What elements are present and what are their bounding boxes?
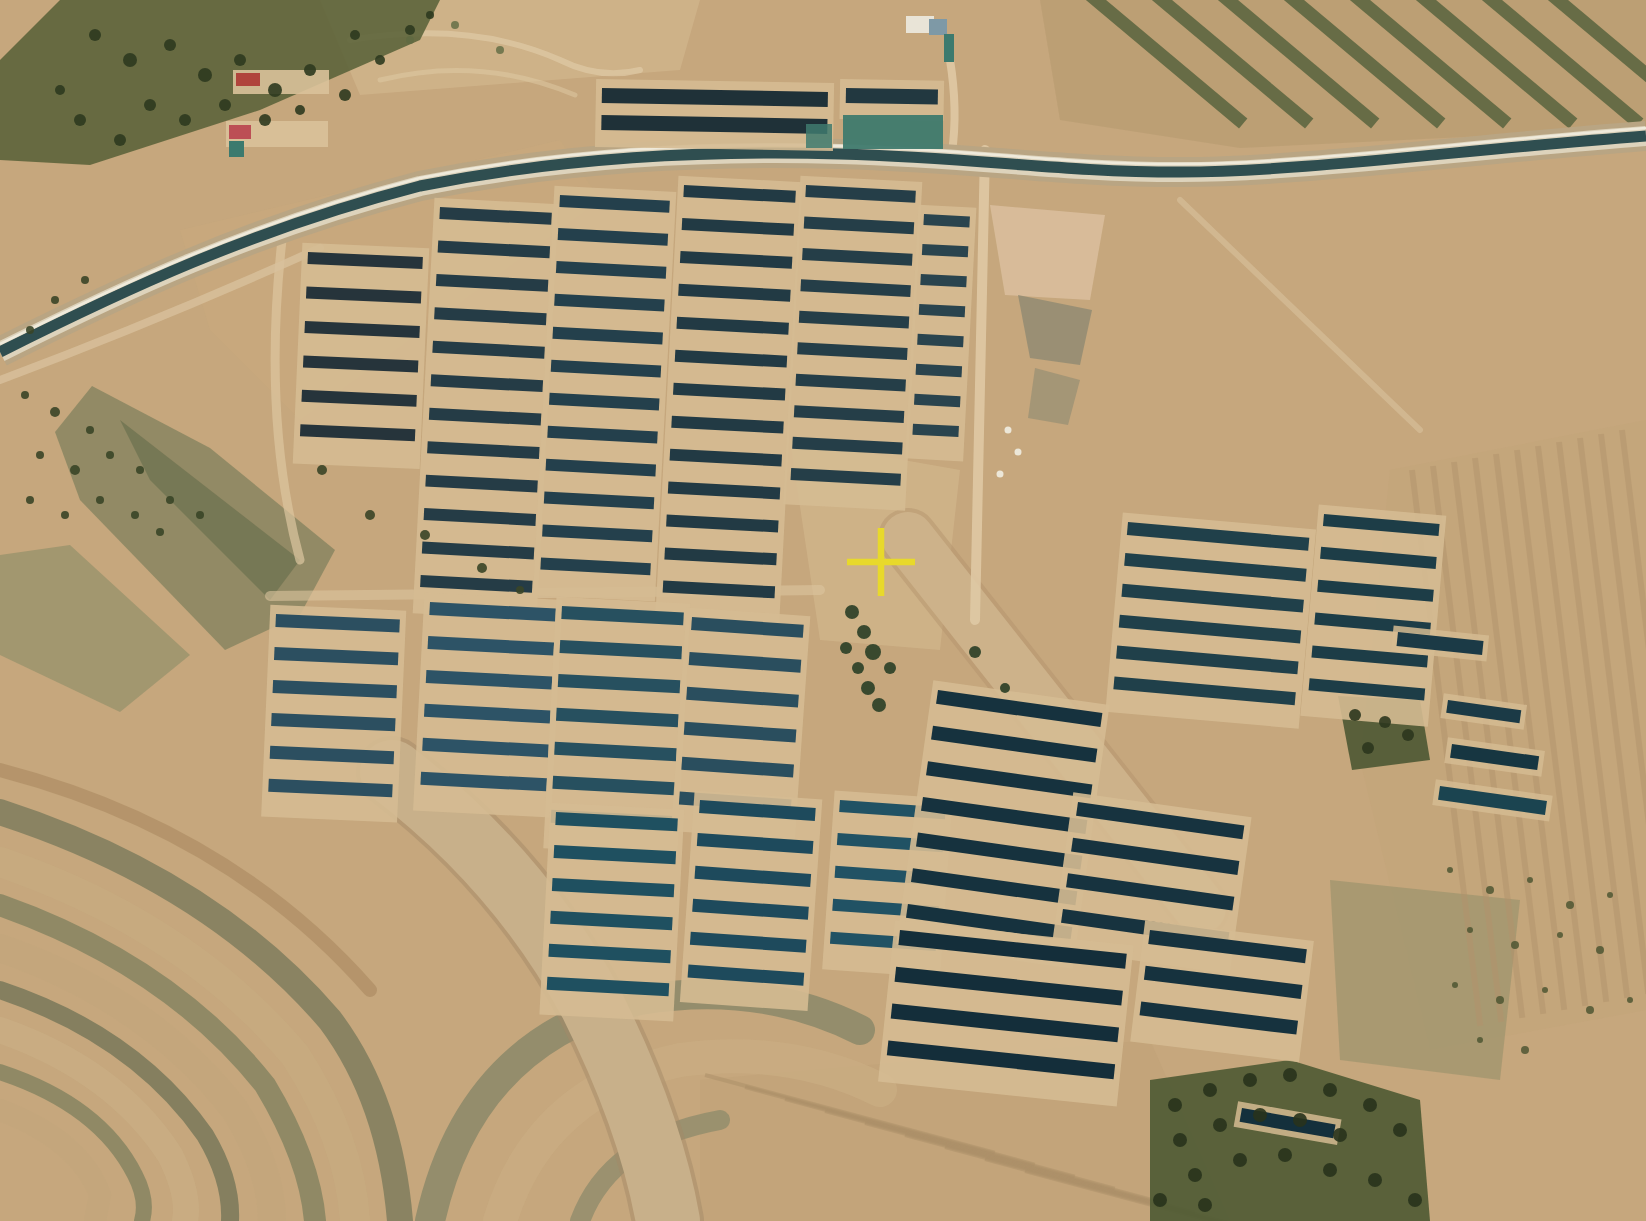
shed-cluster-grid-col-5 [783, 176, 922, 511]
shed-cluster-east-b [1300, 505, 1446, 727]
shed-cluster-mid-col-1 [261, 605, 406, 823]
shed-cluster-low-col-1 [539, 803, 684, 1022]
blue-roof [929, 19, 947, 35]
teal-roof-2 [843, 115, 943, 149]
shed-cluster-mid-col-2 [413, 593, 562, 818]
shed-cluster-low-col-2 [680, 791, 822, 1011]
shed-cluster-east-a [1105, 513, 1316, 729]
track-compound [950, 60, 955, 152]
field-pink-patch [990, 205, 1105, 300]
shed-cluster-south-d [1130, 920, 1314, 1062]
shed-cluster-grid-col-4 [655, 176, 802, 625]
shed-roof [846, 88, 938, 105]
satellite-map-image[interactable] [0, 0, 1646, 1221]
field-right-scrub [1330, 880, 1520, 1080]
red-roof-1 [236, 73, 260, 86]
teal-roof-4 [944, 34, 954, 62]
shed-cluster-north-east [839, 79, 944, 121]
shed-cluster-south-c [878, 920, 1134, 1106]
shed-cluster-grid-col-1 [293, 243, 430, 469]
satellite-viewport[interactable] [0, 0, 1646, 1221]
red-roof-2 [229, 125, 251, 139]
shed-cluster-grid-col-3 [533, 186, 676, 602]
teal-roof-3 [806, 124, 832, 148]
shed-cluster-north-pair [595, 79, 834, 151]
teal-roof-1 [229, 141, 244, 157]
